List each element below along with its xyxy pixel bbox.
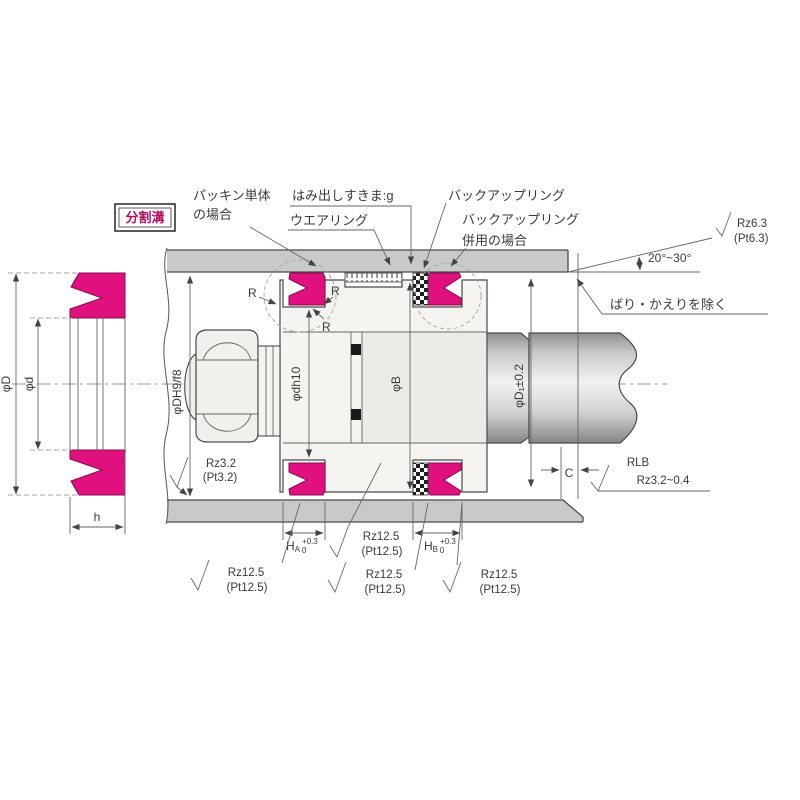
- extrusion-gap-label: はみ出しすきま:g: [292, 188, 394, 203]
- piston: [280, 280, 487, 492]
- seal-bottom-right: [428, 463, 461, 495]
- dim-rod-dia: φD₁±0.2: [512, 364, 526, 408]
- rod-shaft: [529, 333, 637, 443]
- backup-combined-l1: バックアップリング: [462, 212, 579, 227]
- split-joint-mark-top: [351, 344, 361, 355]
- groove-roughness-center-l2: (Pt12.5): [365, 584, 406, 596]
- washer: [258, 346, 280, 436]
- split-groove-badge: 分割溝: [115, 204, 175, 231]
- rlb-label: RLB: [627, 457, 650, 469]
- backup-ring-bottom: [413, 463, 428, 495]
- fillet-r1: R: [248, 286, 257, 300]
- dim-groove-width-a: HA+0.30: [286, 537, 318, 555]
- dim-bore: φDH9/f8: [170, 369, 184, 414]
- bore-roughness-note: Rz3.2 (Pt3.2): [170, 457, 237, 495]
- seal-detail-top: [70, 273, 125, 318]
- split-joint-mark-bottom: [351, 409, 361, 420]
- break-line-left: [164, 248, 169, 524]
- wear-ring-label: ウエアリング: [290, 213, 368, 228]
- groove-roughness-center-l1: Rz12.5: [366, 569, 402, 581]
- bore-roughness-l1: Rz3.2: [206, 458, 236, 470]
- groove-roughness-right-l1: Rz12.5: [481, 569, 517, 581]
- packing-single-l1: パッキン単体: [193, 188, 271, 203]
- piston-rod: [487, 333, 637, 443]
- chamfer-angle-label: 20°~30°: [648, 251, 692, 265]
- seal-installation-drawing: φD φd h φDH9/f8 φdh10 φB φD₁±0.2 C HA+0.…: [0, 0, 800, 800]
- dim-land-dia: φB: [389, 376, 403, 392]
- seal-detail-bottom: [70, 450, 125, 495]
- lead-in-roughness-note: RLB Rz3.2~0.4: [591, 457, 710, 491]
- seal-bottom-left: [289, 463, 325, 495]
- bore-roughness-l2: (Pt3.2): [203, 472, 238, 484]
- dim-groove-width-b: HB+0.30: [424, 537, 456, 555]
- packing-single-l2: の場合: [193, 207, 232, 222]
- technical-diagram-page: φD φd h φDH9/f8 φdh10 φB φD₁±0.2 C HA+0.…: [0, 0, 800, 800]
- dim-seal-od: φD: [0, 375, 13, 392]
- dim-seal-id: φd: [22, 377, 36, 391]
- groove-roughness-mid-l1: Rz12.5: [363, 531, 399, 543]
- roughness-chamfer-l2: (Pt6.3): [734, 233, 769, 245]
- groove-roughness-left-l2: (Pt12.5): [227, 582, 268, 594]
- dim-chamfer-length: C: [565, 466, 574, 480]
- deburr-note: ばり・かえりを除く: [577, 279, 768, 314]
- groove-roughness-left-l1: Rz12.5: [228, 567, 264, 579]
- backup-combined-l2: 併用の場合: [462, 233, 527, 248]
- chamfer-angle-note: 20°~30° Rz6.3 (Pt6.3): [568, 212, 769, 272]
- backup-ring-label: バックアップリング: [448, 188, 565, 203]
- seal-top-right: [428, 273, 461, 305]
- split-groove-label: 分割溝: [125, 210, 164, 225]
- groove-roughness-right-l2: (Pt12.5): [480, 584, 521, 596]
- rlb-value: Rz3.2~0.4: [637, 475, 690, 487]
- deburr-label: ばり・かえりを除く: [610, 297, 727, 312]
- fillet-r3: R: [322, 320, 331, 334]
- roughness-chamfer-l1: Rz6.3: [737, 218, 767, 230]
- wear-ring: [345, 273, 402, 282]
- rod-shank-through-piston: [362, 333, 487, 443]
- dim-seal-height: h: [94, 510, 101, 524]
- groove-roughness-mid-l2: (Pt12.5): [362, 546, 403, 558]
- seal-detail-view: φD φd h: [0, 273, 125, 534]
- seal-top-left: [289, 273, 325, 305]
- dim-groove-dia: φdh10: [289, 366, 303, 401]
- retaining-nut: [185, 330, 280, 442]
- fillet-r2: R: [331, 284, 340, 298]
